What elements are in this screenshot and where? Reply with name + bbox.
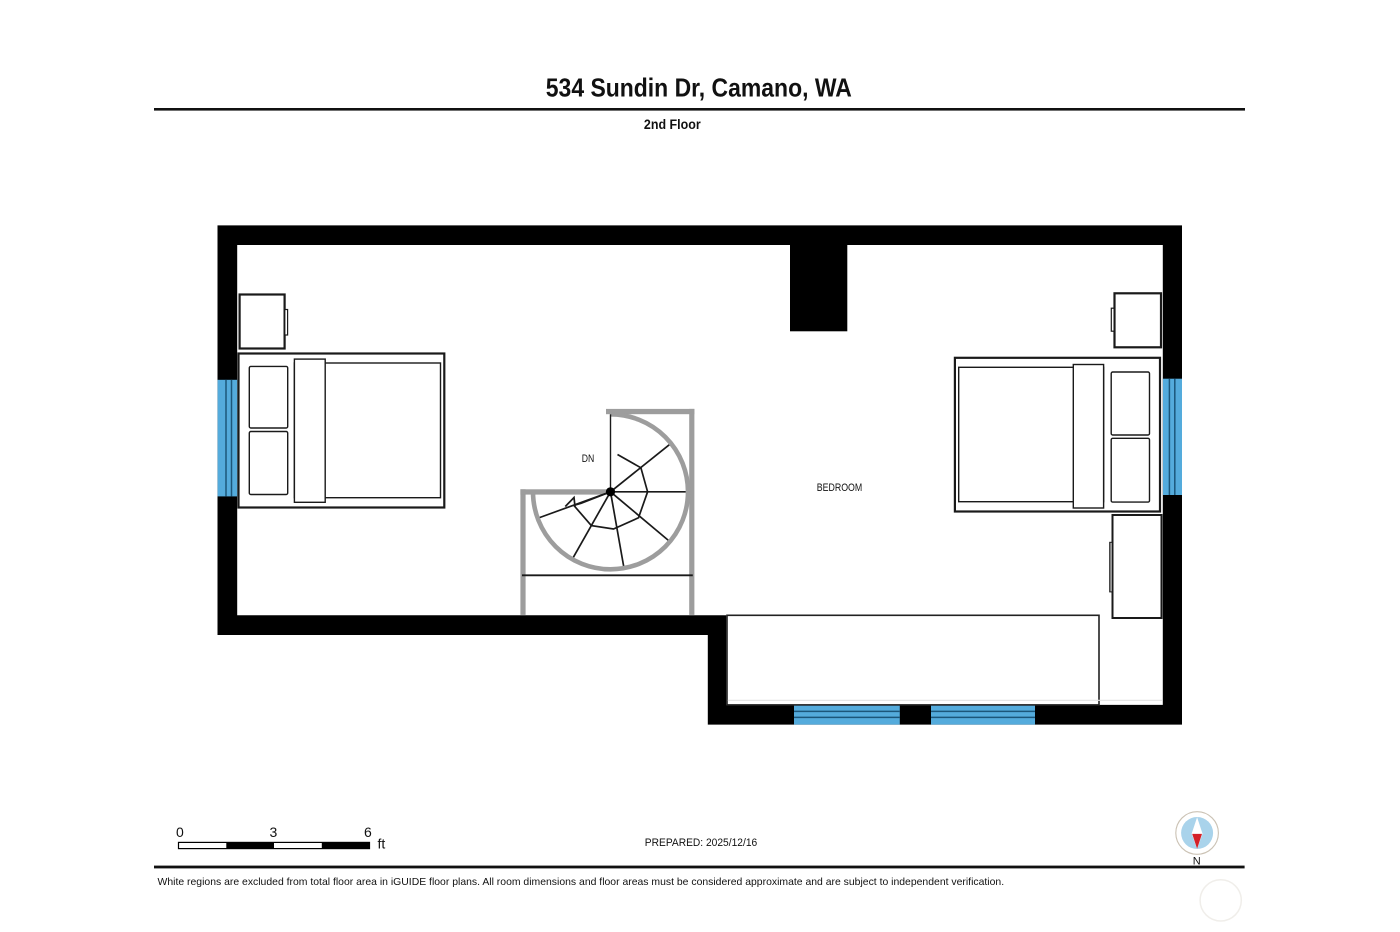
svg-text:ft: ft [378, 836, 386, 852]
svg-text:BEDROOM: BEDROOM [817, 482, 863, 494]
svg-text:2nd Floor: 2nd Floor [644, 116, 701, 132]
svg-text:0: 0 [176, 824, 184, 840]
svg-text:PREPARED: 2025/12/16: PREPARED: 2025/12/16 [645, 837, 757, 849]
svg-text:White regions are excluded fro: White regions are excluded from total fl… [158, 876, 1005, 888]
svg-text:3: 3 [270, 824, 278, 840]
svg-text:534 Sundin Dr, Camano, WA: 534 Sundin Dr, Camano, WA [546, 73, 852, 103]
svg-text:6: 6 [364, 824, 372, 840]
svg-text:DN: DN [582, 453, 595, 465]
